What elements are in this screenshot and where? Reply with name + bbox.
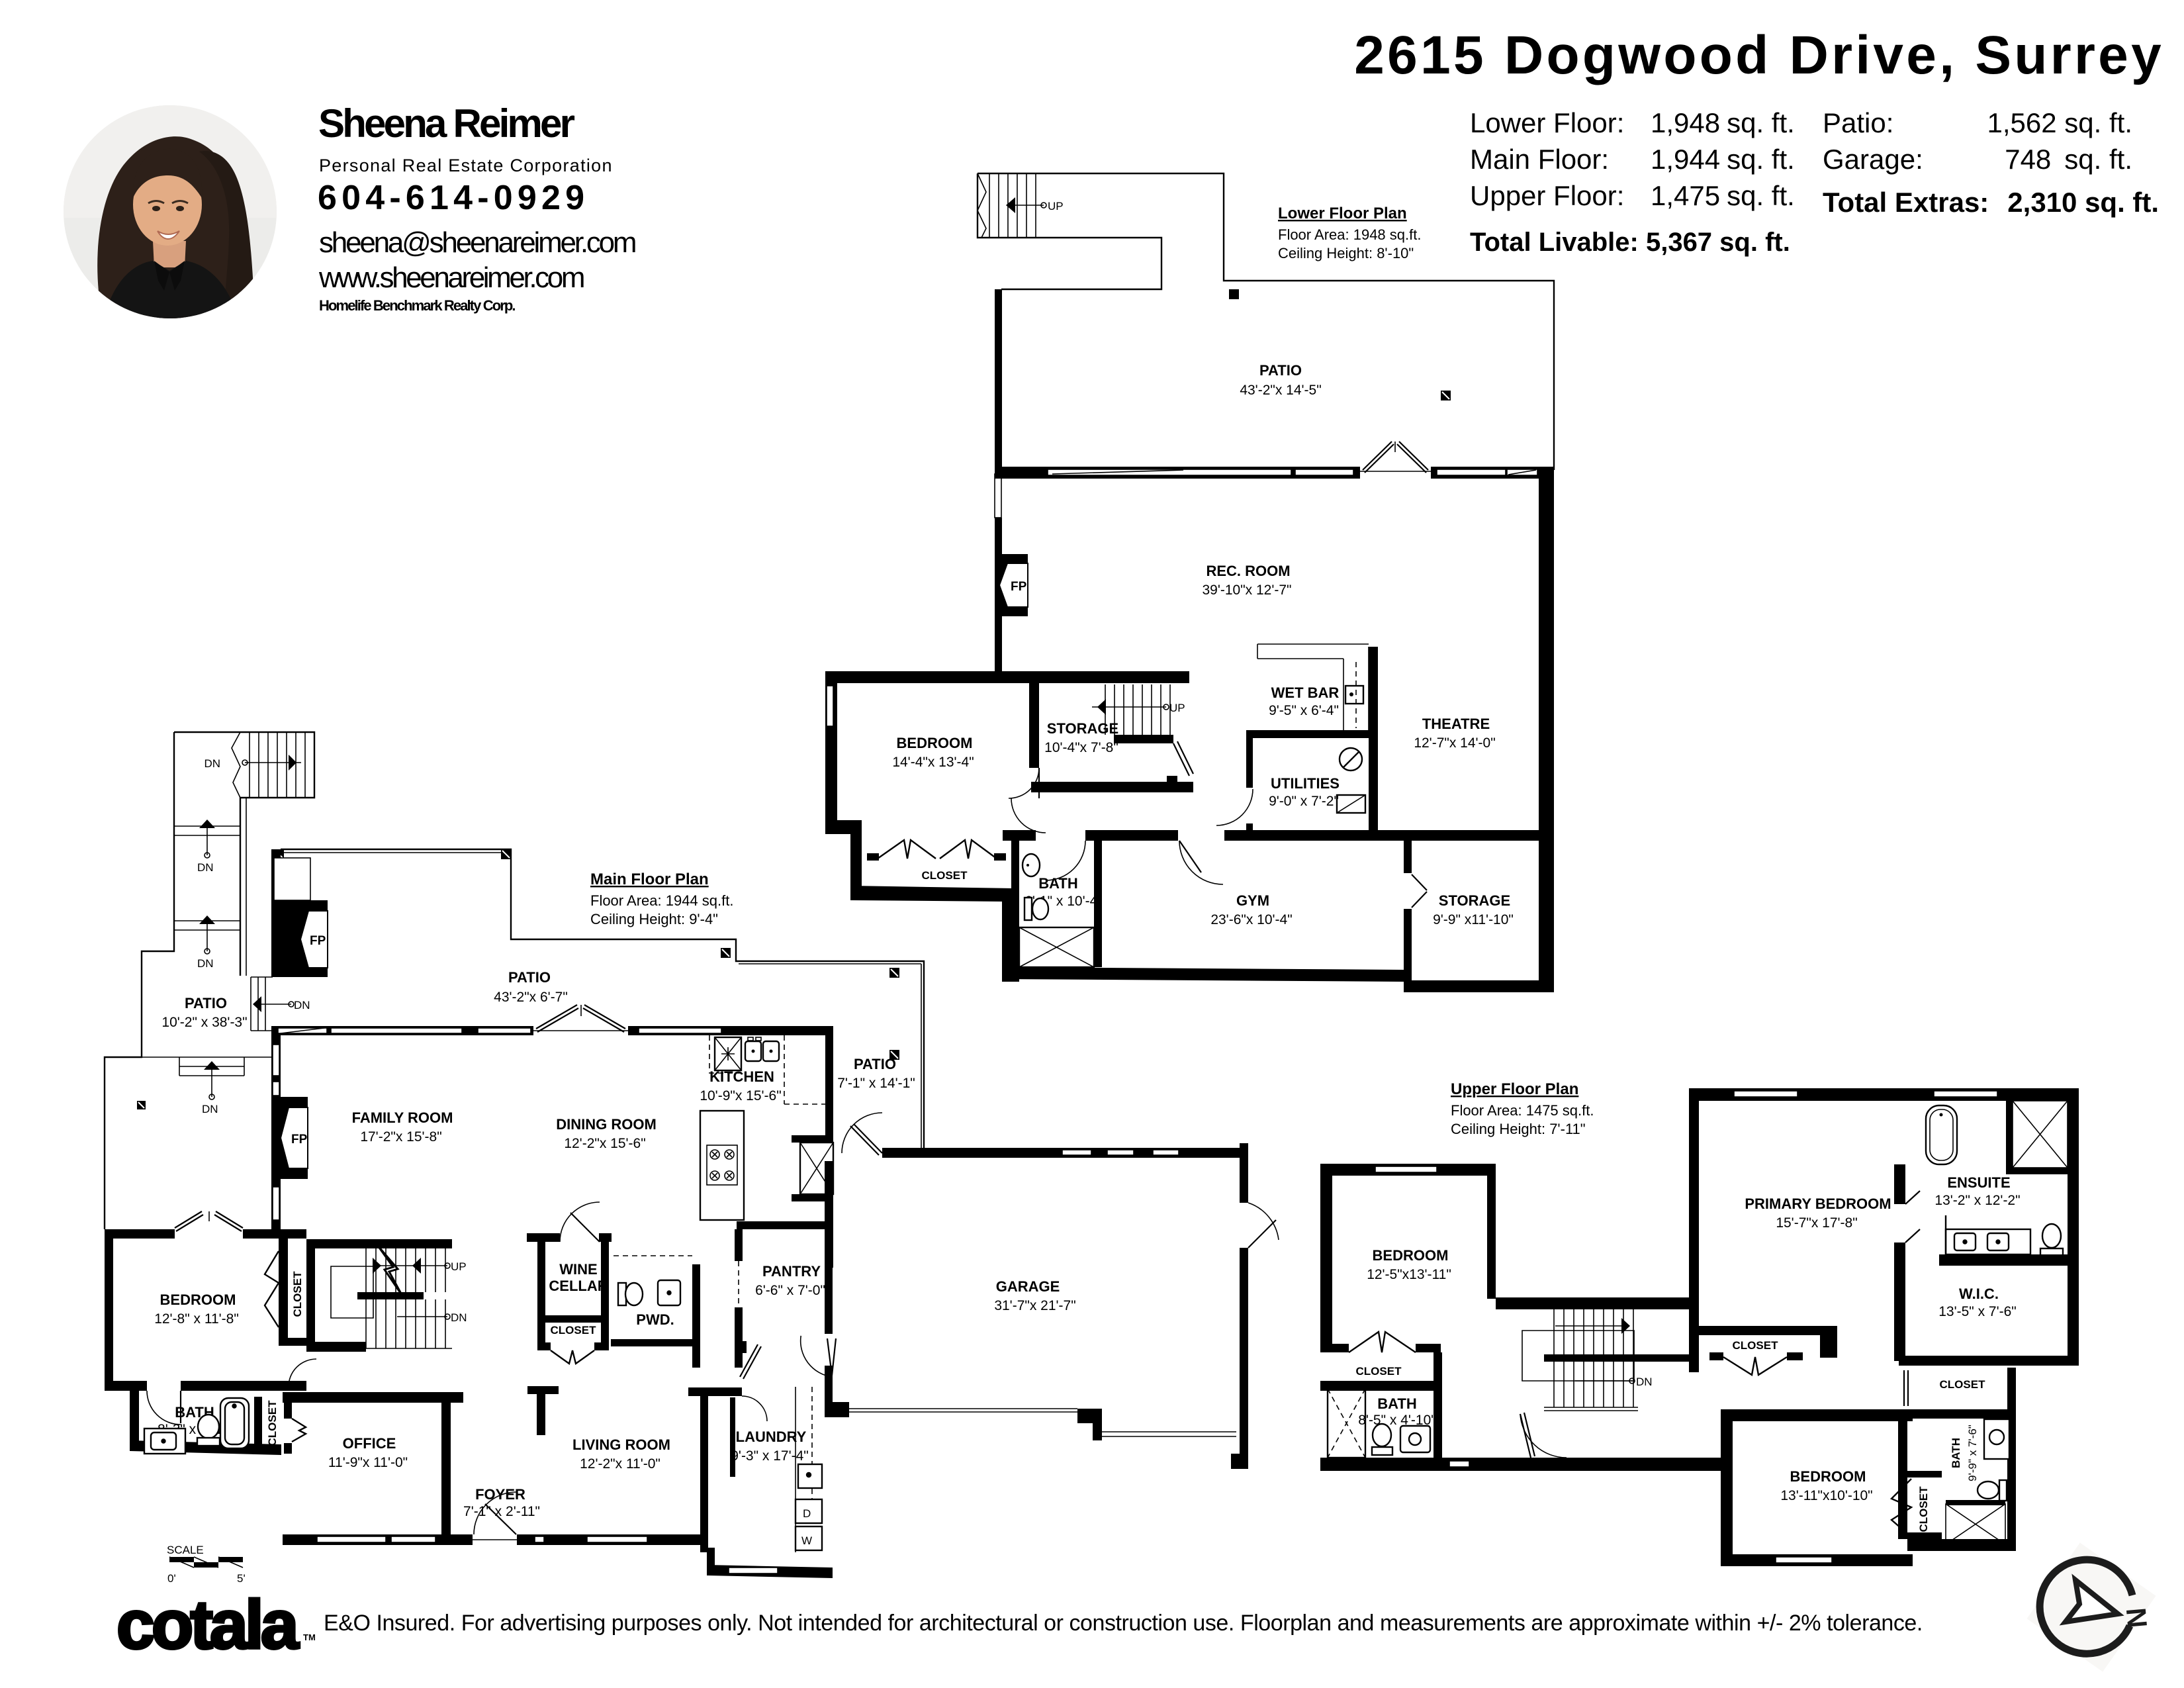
svg-text:WET BAR: WET BAR — [1271, 684, 1340, 701]
svg-text:9'-9" x11'-10": 9'-9" x11'-10" — [1433, 912, 1514, 927]
svg-text:31'-7"x 21'-7": 31'-7"x 21'-7" — [994, 1298, 1075, 1313]
svg-text:11'-9"x 11'-0": 11'-9"x 11'-0" — [328, 1455, 408, 1470]
svg-text:Main Floor Plan: Main Floor Plan — [590, 870, 709, 888]
svg-text:ENSUITE: ENSUITE — [1947, 1174, 2010, 1191]
svg-text:FOYER: FOYER — [475, 1486, 525, 1503]
svg-text:THEATRE: THEATRE — [1422, 716, 1490, 732]
svg-text:DN: DN — [202, 1103, 218, 1115]
svg-text:PWD.: PWD. — [636, 1311, 674, 1328]
svg-text:43'-2"x 6'-7": 43'-2"x 6'-7" — [494, 990, 568, 1005]
svg-text:BATH: BATH — [1950, 1438, 1962, 1468]
svg-text:PRIMARY BEDROOM: PRIMARY BEDROOM — [1745, 1196, 1891, 1212]
svg-text:9'-3" x 17'-4": 9'-3" x 17'-4" — [731, 1448, 808, 1464]
svg-text:BATH: BATH — [1377, 1395, 1416, 1412]
svg-text:Ceiling Height: 9'-4": Ceiling Height: 9'-4" — [590, 911, 718, 927]
svg-text:W.I.C.: W.I.C. — [1959, 1286, 1999, 1302]
svg-text:BEDROOM: BEDROOM — [897, 735, 973, 751]
svg-text:PATIO: PATIO — [1259, 362, 1302, 379]
svg-text:CLOSET: CLOSET — [1917, 1486, 1930, 1532]
svg-text:PATIO: PATIO — [185, 995, 227, 1011]
svg-text:10'-4"x 7'-8": 10'-4"x 7'-8" — [1044, 740, 1118, 755]
svg-text:STORAGE: STORAGE — [1439, 892, 1510, 909]
svg-text:CELLAR: CELLAR — [549, 1278, 608, 1294]
svg-text:12'-7"x 14'-0": 12'-7"x 14'-0" — [1414, 735, 1495, 751]
svg-text:Floor Area: 1944 sq.ft.: Floor Area: 1944 sq.ft. — [590, 892, 733, 909]
svg-text:DN: DN — [294, 999, 310, 1011]
svg-text:Floor Area: 1475 sq.ft.: Floor Area: 1475 sq.ft. — [1451, 1102, 1594, 1119]
svg-text:FP: FP — [310, 934, 326, 948]
svg-text:CLOSET: CLOSET — [922, 869, 968, 882]
svg-text:OFFICE: OFFICE — [343, 1435, 396, 1452]
svg-text:PANTRY: PANTRY — [762, 1263, 821, 1280]
svg-text:DN: DN — [451, 1311, 467, 1324]
svg-text:WINE: WINE — [559, 1261, 597, 1278]
svg-text:23'-6"x 10'-4": 23'-6"x 10'-4" — [1210, 912, 1292, 927]
svg-text:N: N — [2120, 1607, 2153, 1629]
svg-text:13'-2" x 12'-2": 13'-2" x 12'-2" — [1934, 1193, 2020, 1208]
svg-text:PATIO: PATIO — [508, 969, 551, 986]
svg-text:DN: DN — [204, 757, 220, 770]
svg-text:10'-2" x 38'-3": 10'-2" x 38'-3" — [161, 1015, 247, 1030]
svg-text:BEDROOM: BEDROOM — [160, 1291, 236, 1308]
svg-text:FP: FP — [291, 1133, 308, 1147]
svg-text:BEDROOM: BEDROOM — [1373, 1247, 1449, 1264]
svg-text:12'-2"x 11'-0": 12'-2"x 11'-0" — [580, 1456, 660, 1472]
svg-text:CLOSET: CLOSET — [266, 1400, 279, 1446]
svg-text:Ceiling Height: 8'-10": Ceiling Height: 8'-10" — [1278, 245, 1414, 261]
svg-text:Ceiling Height: 7'-11": Ceiling Height: 7'-11" — [1451, 1121, 1586, 1137]
svg-text:6'-6" x 7'-0": 6'-6" x 7'-0" — [755, 1283, 825, 1298]
svg-text:GARAGE: GARAGE — [996, 1278, 1060, 1295]
svg-text:LIVING ROOM: LIVING ROOM — [572, 1436, 670, 1453]
svg-text:REC. ROOM: REC. ROOM — [1206, 563, 1290, 579]
svg-text:17'-2"x 15'-8": 17'-2"x 15'-8" — [360, 1129, 441, 1145]
svg-text:43'-2"x 14'-5": 43'-2"x 14'-5" — [1240, 383, 1321, 398]
svg-text:9'-0" x 7'-2": 9'-0" x 7'-2" — [1269, 794, 1339, 809]
svg-text:7'-1" x 14'-1": 7'-1" x 14'-1" — [837, 1076, 915, 1091]
svg-text:13'-11"x10'-10": 13'-11"x10'-10" — [1780, 1488, 1872, 1503]
svg-text:DINING ROOM: DINING ROOM — [556, 1116, 657, 1133]
svg-text:15'-7"x 17'-8": 15'-7"x 17'-8" — [1776, 1215, 1857, 1231]
svg-text:UP: UP — [451, 1260, 467, 1273]
svg-text:CLOSET: CLOSET — [1733, 1339, 1779, 1352]
svg-text:GYM: GYM — [1236, 892, 1269, 909]
svg-text:UTILITIES: UTILITIES — [1271, 775, 1340, 792]
svg-text:12'-8" x 11'-8": 12'-8" x 11'-8" — [154, 1311, 239, 1327]
svg-text:10'-9"x 15'-6": 10'-9"x 15'-6" — [700, 1088, 781, 1103]
svg-text:CLOSET: CLOSET — [291, 1271, 304, 1317]
svg-text:CLOSET: CLOSET — [551, 1324, 597, 1336]
svg-text:FAMILY ROOM: FAMILY ROOM — [352, 1109, 453, 1126]
svg-text:DN: DN — [197, 957, 214, 970]
svg-text:UP: UP — [1048, 200, 1064, 212]
svg-text:9'-9" x 7'-6": 9'-9" x 7'-6" — [1966, 1425, 1979, 1481]
svg-text:STORAGE: STORAGE — [1047, 720, 1118, 737]
svg-text:DN: DN — [197, 861, 214, 874]
svg-text:UP: UP — [1169, 702, 1185, 714]
svg-text:PATIO: PATIO — [854, 1056, 896, 1072]
svg-text:5': 5' — [237, 1572, 246, 1585]
svg-text:CLOSET: CLOSET — [1940, 1378, 1986, 1391]
svg-text:13'-5" x 7'-6": 13'-5" x 7'-6" — [1938, 1304, 2016, 1319]
svg-text:SCALE: SCALE — [167, 1544, 204, 1556]
svg-text:9'-5" x 6'-4": 9'-5" x 6'-4" — [1269, 703, 1339, 718]
svg-text:Upper Floor Plan: Upper Floor Plan — [1451, 1080, 1578, 1098]
svg-text:12'-5"x13'-11": 12'-5"x13'-11" — [1367, 1267, 1451, 1282]
svg-text:DN: DN — [1636, 1376, 1653, 1388]
svg-text:12'-2"x 15'-6": 12'-2"x 15'-6" — [564, 1136, 645, 1151]
svg-text:FP: FP — [1011, 580, 1027, 594]
svg-text:7'-1" x 2'-11": 7'-1" x 2'-11" — [463, 1504, 540, 1519]
svg-text:W: W — [801, 1534, 812, 1547]
svg-text:Floor Area: 1948 sq.ft.: Floor Area: 1948 sq.ft. — [1278, 226, 1421, 243]
svg-text:BEDROOM: BEDROOM — [1790, 1468, 1866, 1485]
svg-text:0': 0' — [167, 1572, 176, 1585]
svg-text:CLOSET: CLOSET — [1356, 1365, 1402, 1378]
svg-text:14'-4"x 13'-4": 14'-4"x 13'-4" — [892, 755, 974, 770]
svg-text:39'-10"x 12'-7": 39'-10"x 12'-7" — [1202, 583, 1291, 598]
svg-text:BATH: BATH — [1038, 875, 1077, 892]
svg-text:D: D — [803, 1507, 811, 1520]
svg-text:Lower Floor Plan: Lower Floor Plan — [1278, 205, 1407, 222]
